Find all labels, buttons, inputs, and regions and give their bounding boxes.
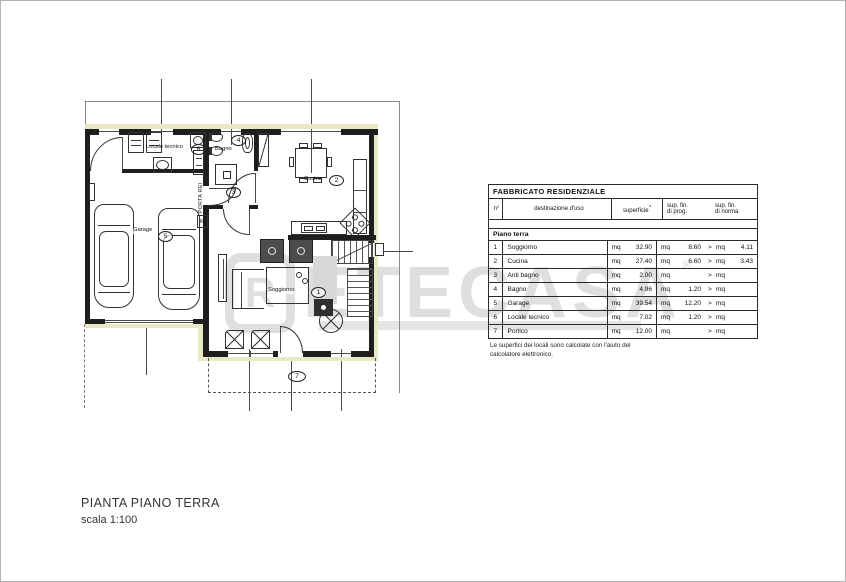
car-icon: [94, 204, 134, 308]
room-tag-garage: 5: [158, 231, 173, 242]
row-fin: mq12.20>mq: [656, 297, 757, 310]
door-arc: [90, 137, 122, 171]
room-tag-portico: 7: [288, 371, 306, 382]
window-box: [375, 243, 384, 256]
row-fin: mq8.60>mq4.11: [656, 241, 757, 254]
sink-bowl: [316, 226, 325, 231]
wall-right: [369, 129, 374, 243]
table-section-row: Piano terra: [489, 228, 757, 240]
pillar-icon: [225, 330, 244, 349]
burner: [357, 219, 365, 227]
row-use: Garage: [502, 297, 607, 310]
room-tag-locale-tecnico: 6: [191, 144, 206, 155]
bidet-tank: [209, 147, 212, 155]
axis-tick: [231, 79, 232, 145]
wall: [351, 351, 374, 357]
row-surface: mq27.40: [607, 255, 656, 268]
chair-icon: [299, 143, 308, 148]
row-surface: mq32.90: [607, 241, 656, 254]
car-detail: [98, 292, 130, 293]
garage-door: [105, 320, 193, 321]
wall: [249, 205, 258, 209]
toilet-tank: [209, 133, 212, 141]
car-detail: [98, 225, 130, 226]
room-label-locale-tecnico: Locale tecnico: [146, 145, 183, 151]
row-use: Cucina: [502, 255, 607, 268]
surface-table: FABBRICATO RESIDENZIALE n° destinazione …: [488, 184, 758, 339]
row-num: 2: [489, 258, 502, 265]
dining-table-icon: [295, 148, 327, 178]
armchair-detail: [297, 247, 305, 255]
table-title-row: FABBRICATO RESIDENZIALE: [489, 185, 757, 198]
cabinet-icon: [258, 133, 269, 167]
counter-line: [354, 190, 367, 191]
row-num: 4: [489, 286, 502, 293]
window: [99, 131, 119, 132]
room-tag-bagno: 4: [231, 135, 246, 146]
row-num: 1: [489, 244, 502, 251]
sofa-detail: [241, 272, 242, 308]
wall: [303, 351, 331, 357]
row-use: Soggiorno: [502, 241, 607, 254]
wall: [273, 351, 278, 357]
header-fin-norma: sup. fin.di norma: [711, 203, 753, 215]
table-header-row: n° destinazione d'uso superficie * sup. …: [489, 198, 757, 219]
row-num: 6: [489, 314, 502, 321]
window: [221, 131, 241, 132]
boiler-detail: [131, 136, 141, 149]
insulation-band-garage: [85, 324, 198, 328]
row-num: 7: [489, 328, 502, 335]
wall: [203, 351, 228, 357]
kitchen-sink-icon: [301, 223, 327, 233]
row-fin: mq>mq: [656, 325, 757, 338]
lot-line-top: [85, 101, 400, 102]
tv-cabinet-icon: [218, 254, 227, 302]
header-use: destinazione d'uso: [502, 199, 611, 219]
coffee-table-icon: [266, 267, 309, 304]
door-leaf: [255, 173, 256, 203]
window: [281, 131, 341, 132]
car-detail: [99, 231, 129, 287]
fixture: [153, 157, 172, 173]
room-label-garage: Garage: [133, 228, 152, 234]
table-footnote: Le superfici dei locali sono calcolate c…: [490, 342, 650, 359]
door-leaf: [122, 137, 123, 171]
table-row: 5 Garage mq39.54 mq12.20>mq: [489, 296, 757, 310]
window-mullion: [250, 351, 251, 357]
chair-icon: [289, 157, 294, 167]
table-row: 3 Anti bagno mq2.00 mq>mq: [489, 268, 757, 282]
armchair-icon: [289, 239, 313, 263]
chair-icon: [313, 143, 322, 148]
page: R ETECASA ®: [0, 0, 846, 582]
header-num: n°: [489, 199, 502, 219]
fixture-detail: [196, 158, 202, 159]
shower-icon: [215, 164, 237, 185]
table-decor: [296, 272, 302, 278]
window: [331, 353, 351, 354]
room-label-soggiorno: Soggiorno: [268, 288, 294, 294]
table-row: 2 Cucina mq27.40 mq6.60>mq3.43: [489, 254, 757, 268]
stairs-lower-flight: [347, 268, 373, 317]
row-fin: mq1.20>mq: [656, 311, 757, 324]
wall-left: [85, 129, 90, 324]
car-icon: [158, 208, 200, 310]
wall-fixture: [89, 183, 95, 201]
door-arc: [223, 209, 249, 235]
table-row: 7 Portico mq12.00 mq>mq: [489, 324, 757, 338]
row-use: Locale tecnico: [502, 311, 607, 324]
room-tag-antibagno: 3: [226, 187, 241, 198]
sink-bowl: [304, 226, 313, 231]
row-num: 5: [489, 300, 502, 307]
section-label: Piano terra: [493, 231, 529, 238]
wall: [85, 319, 105, 324]
shower-drain: [223, 171, 231, 179]
table-spacer-row: [489, 219, 757, 228]
row-fin: mq6.60>mq3.43: [656, 255, 757, 268]
drawing-title: PIANTA PIANO TERRA: [81, 496, 220, 510]
table-row: 4 Bagno mq4.96 mq1.20>mq: [489, 282, 757, 296]
lot-line-left-dashed: [84, 324, 85, 408]
car-detail: [162, 294, 196, 295]
door-leaf: [249, 209, 250, 235]
burner: [351, 213, 359, 221]
row-fin: mq>mq: [656, 269, 757, 282]
room-tag-cucina: 2: [329, 175, 344, 186]
drawing-scale: scala 1:100: [81, 514, 137, 526]
fixture-detail: [156, 160, 169, 170]
row-num: 3: [489, 272, 502, 279]
entrance-door-arc: [280, 326, 303, 353]
round-stove-icon: [319, 309, 343, 333]
armchair-detail: [268, 247, 276, 255]
header-fin: sup. fin.di prog. sup. fin.di norma: [662, 199, 757, 219]
row-surface: mq4.96: [607, 283, 656, 296]
sofa-icon: [232, 269, 264, 309]
room-label-cucina: Cucina: [304, 177, 322, 183]
header-fin-prog: sup. fin.di prog.: [663, 203, 705, 215]
chair-icon: [327, 157, 332, 167]
room-tag-soggiorno: 1: [311, 287, 326, 298]
lot-line-right: [399, 101, 400, 393]
pillar-icon: [251, 330, 270, 349]
header-surface: superficie *: [611, 199, 662, 219]
wall-divider: [203, 208, 209, 357]
fixture-detail: [196, 165, 202, 166]
table-title: FABBRICATO RESIDENZIALE: [493, 187, 605, 196]
row-surface: mq39.54: [607, 297, 656, 310]
burner: [351, 226, 359, 234]
row-use: Bagno: [502, 283, 607, 296]
car-detail: [162, 229, 196, 230]
table-row: 1 Soggiorno mq32.90 mq8.60>mq4.11: [489, 240, 757, 254]
row-use: Portico: [502, 325, 607, 338]
car-detail: [163, 235, 195, 289]
room-label-bagno: Bagno: [215, 147, 232, 153]
row-surface: mq2.00: [607, 269, 656, 282]
table-row: 6 Locale tecnico mq7.02 mq1.20>mq: [489, 310, 757, 324]
row-use: Anti bagno: [502, 269, 607, 282]
armchair-icon: [260, 239, 284, 263]
row-fin: mq1.20>mq: [656, 283, 757, 296]
table-decor: [302, 278, 308, 284]
row-surface: mq7.02: [607, 311, 656, 324]
axis-tick: [146, 327, 147, 375]
wall: [193, 319, 208, 324]
boiler-icon: [128, 132, 144, 153]
garage-door: [105, 322, 193, 323]
tv-detail: [223, 259, 224, 299]
row-surface: mq12.00: [607, 325, 656, 338]
